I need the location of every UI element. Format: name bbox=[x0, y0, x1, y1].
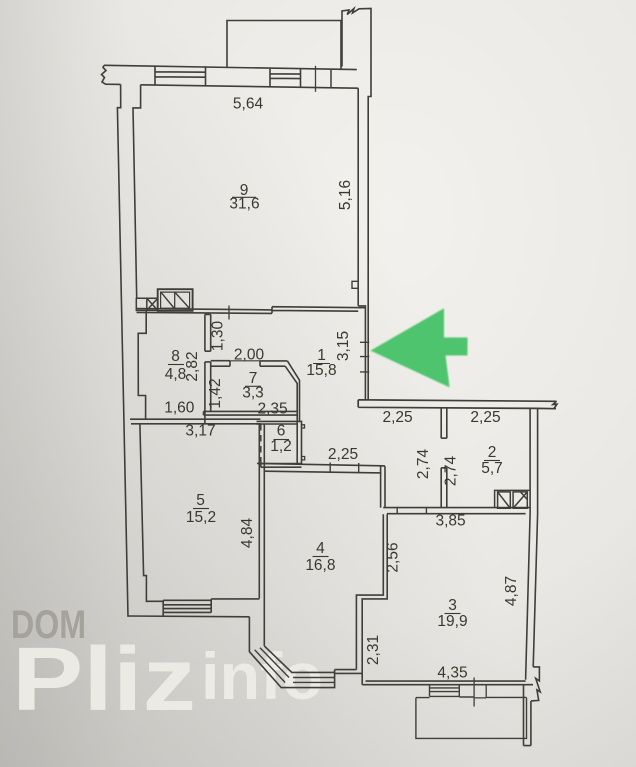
svg-text:2,31: 2,31 bbox=[365, 635, 382, 665]
svg-text:3,15: 3,15 bbox=[335, 331, 352, 361]
svg-text:5,64: 5,64 bbox=[233, 96, 264, 113]
svg-text:3,3: 3,3 bbox=[242, 385, 264, 402]
svg-text:8: 8 bbox=[171, 348, 180, 365]
svg-text:2,56: 2,56 bbox=[385, 542, 402, 572]
svg-text:5,16: 5,16 bbox=[337, 180, 354, 210]
svg-text:3,17: 3,17 bbox=[185, 423, 215, 440]
svg-text:1,42: 1,42 bbox=[207, 378, 224, 408]
svg-text:1,2: 1,2 bbox=[270, 438, 292, 455]
svg-text:2,25: 2,25 bbox=[383, 409, 413, 426]
svg-text:4: 4 bbox=[316, 540, 325, 557]
svg-text:2,25: 2,25 bbox=[328, 446, 358, 463]
svg-text:15,2: 15,2 bbox=[186, 509, 216, 526]
svg-text:Pliz: Pliz bbox=[12, 630, 196, 730]
svg-text:3,85: 3,85 bbox=[436, 513, 466, 530]
svg-text:2,00: 2,00 bbox=[234, 347, 265, 364]
svg-text:5,7: 5,7 bbox=[481, 460, 503, 477]
svg-text:2,25: 2,25 bbox=[470, 409, 500, 426]
svg-text:19,9: 19,9 bbox=[437, 613, 467, 630]
svg-text:2,74: 2,74 bbox=[443, 456, 460, 487]
svg-text:4,35: 4,35 bbox=[437, 665, 467, 682]
svg-text:31,6: 31,6 bbox=[229, 196, 259, 213]
svg-text:16,8: 16,8 bbox=[305, 557, 335, 574]
svg-text:5: 5 bbox=[196, 492, 205, 509]
svg-text:2,74: 2,74 bbox=[415, 449, 432, 480]
svg-text:2,35: 2,35 bbox=[258, 401, 288, 418]
svg-text:4,87: 4,87 bbox=[503, 576, 520, 606]
svg-text:1,30: 1,30 bbox=[210, 321, 227, 352]
svg-text:15,8: 15,8 bbox=[306, 362, 336, 379]
svg-text:1,60: 1,60 bbox=[164, 400, 195, 417]
svg-text:6: 6 bbox=[277, 423, 286, 440]
svg-text:2,82: 2,82 bbox=[184, 351, 201, 381]
svg-text:3: 3 bbox=[448, 597, 457, 614]
svg-text:4,84: 4,84 bbox=[239, 518, 256, 549]
svg-text:2: 2 bbox=[488, 444, 497, 461]
